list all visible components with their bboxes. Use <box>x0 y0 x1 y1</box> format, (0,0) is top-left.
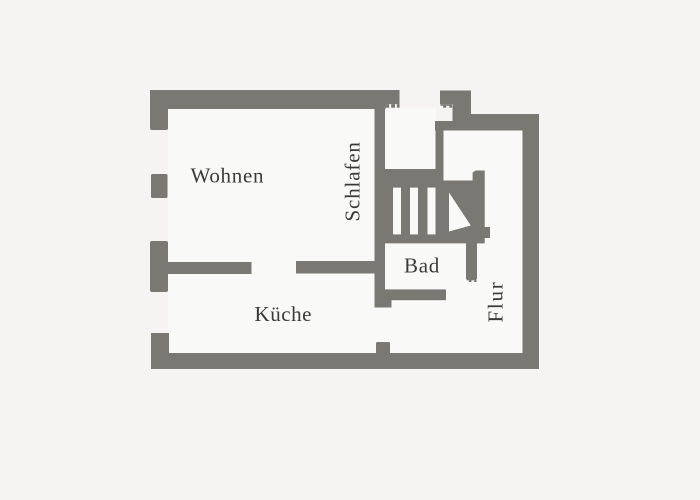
svg-text:Bad: Bad <box>404 254 440 278</box>
svg-text:Schlafen: Schlafen <box>341 141 365 221</box>
svg-text:Küche: Küche <box>255 302 313 326</box>
svg-text:Wohnen: Wohnen <box>191 164 265 188</box>
svg-text:Flur: Flur <box>484 280 508 322</box>
